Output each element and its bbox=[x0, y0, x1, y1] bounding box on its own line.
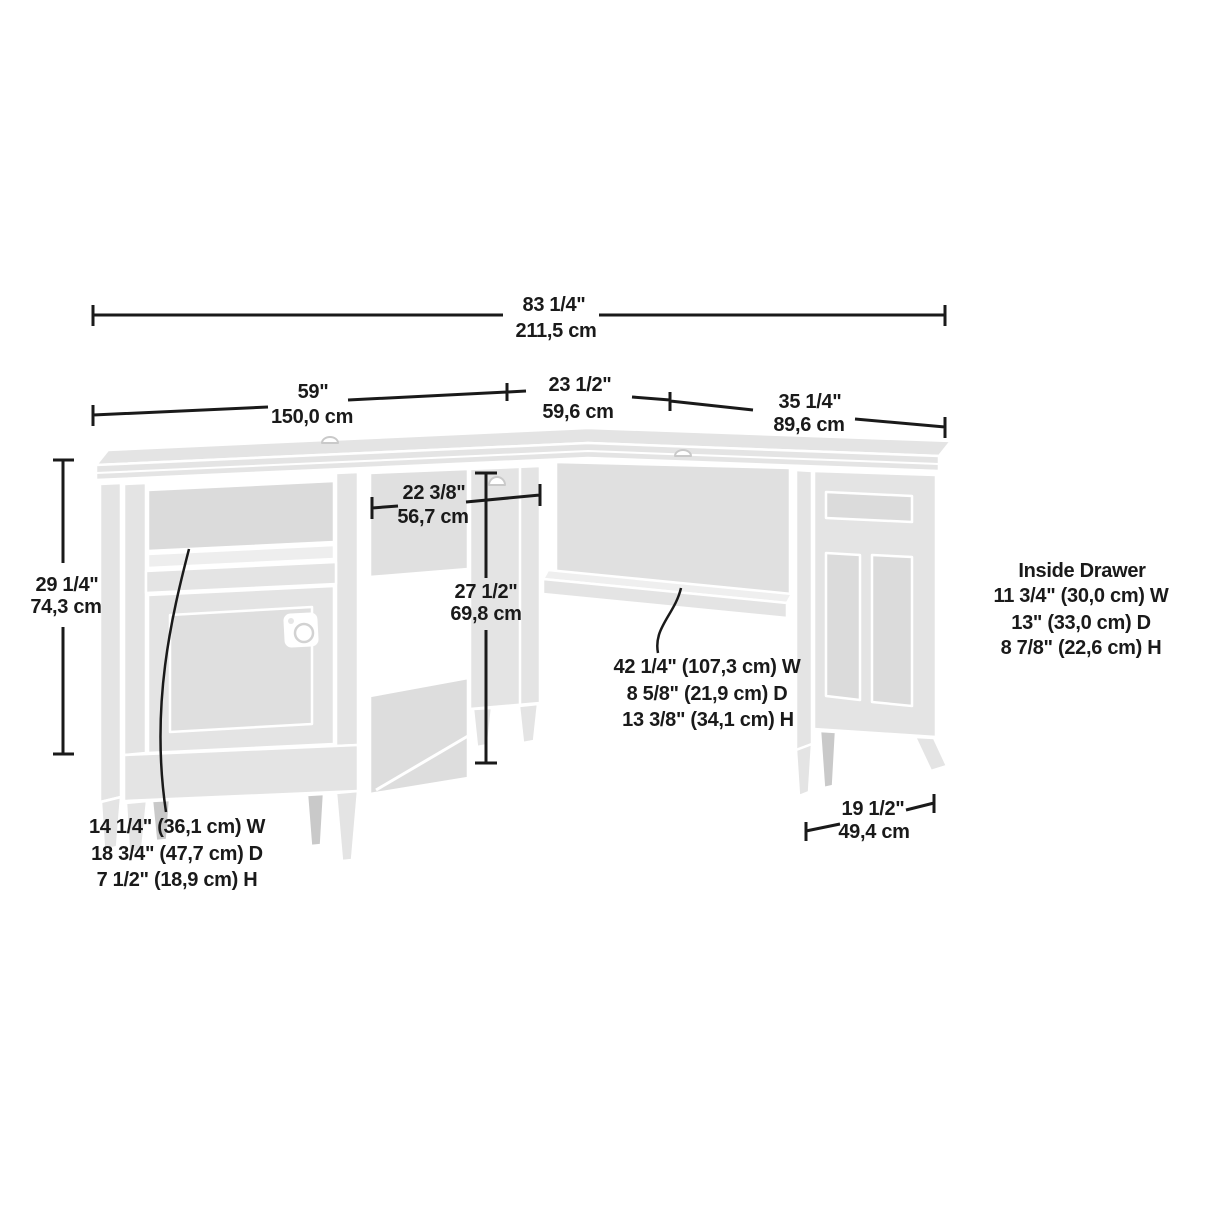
corner-column-foot-right bbox=[519, 704, 538, 743]
dim-return-depth-cm-label: 49,4 cm bbox=[838, 822, 909, 842]
dim-height-cm-label: 74,3 cm bbox=[30, 597, 101, 617]
knee-lower-rail bbox=[370, 678, 468, 794]
right-pedestal-front-leg bbox=[796, 744, 812, 796]
left-pedestal-left-stile bbox=[124, 483, 146, 755]
note-cubby-line-1: 14 1/4" (36,1 cm) W bbox=[89, 817, 265, 837]
note-shelf-line-3: 13 3/8" (34,1 cm) H bbox=[622, 710, 794, 730]
grommet-icon-4 bbox=[675, 450, 691, 456]
right-pedestal-panel-left bbox=[826, 553, 860, 700]
dim-height-in-label: 29 1/4" bbox=[36, 575, 99, 595]
dim-main-cm-label: 150,0 cm bbox=[271, 407, 353, 427]
dim-main-in-label: 59" bbox=[298, 382, 329, 402]
desk bbox=[96, 428, 951, 861]
dimension-diagram: 83 1/4" 211,5 cm 59" 150,0 cm 23 1/2" 59… bbox=[0, 0, 1214, 1214]
right-pedestal-front-stile bbox=[796, 470, 812, 750]
dim-return-width-in-label: 35 1/4" bbox=[779, 392, 842, 412]
dim-knee-in-label: 22 3/8" bbox=[403, 483, 466, 503]
grommet-icon-1 bbox=[322, 437, 338, 443]
door-knob bbox=[283, 612, 319, 648]
note-shelf-line-1: 42 1/4" (107,3 cm) W bbox=[614, 657, 801, 677]
dim-return-depth-in-label: 19 1/2" bbox=[842, 799, 905, 819]
inside-drawer-line-3: 8 7/8" (22,6 cm) H bbox=[1001, 638, 1162, 658]
dim-corner-cm-label: 59,6 cm bbox=[542, 402, 613, 422]
inside-drawer-line-1: 11 3/4" (30,0 cm) W bbox=[994, 586, 1169, 606]
dim-clearance-in-label: 27 1/2" bbox=[455, 582, 518, 602]
corner-column-foot-left bbox=[473, 708, 492, 747]
left-pedestal-front-right-leg bbox=[336, 791, 358, 861]
dim-corner-in-label: 23 1/2" bbox=[549, 375, 612, 395]
note-cubby-line-2: 18 3/4" (47,7 cm) D bbox=[91, 844, 263, 864]
right-pedestal-panel-right bbox=[872, 555, 912, 706]
note-shelf-line-2: 8 5/8" (21,9 cm) D bbox=[627, 684, 788, 704]
dim-clearance-cm-label: 69,8 cm bbox=[450, 604, 521, 624]
left-pedestal-right-stile bbox=[336, 472, 358, 746]
left-pedestal-bottom-rail bbox=[124, 745, 358, 801]
right-pedestal-upper-panel bbox=[826, 492, 912, 522]
desk-line-art bbox=[0, 0, 1214, 1214]
grommet-icon-2 bbox=[489, 477, 505, 485]
left-pedestal-side bbox=[100, 483, 121, 802]
inside-drawer-title: Inside Drawer bbox=[1018, 561, 1145, 581]
right-pedestal-right-leg bbox=[915, 737, 947, 771]
right-pedestal-inner-leg bbox=[820, 731, 836, 788]
note-cubby-line-3: 7 1/2" (18,9 cm) H bbox=[97, 870, 258, 890]
dim-knee-cm-label: 56,7 cm bbox=[397, 507, 468, 527]
dim-return-width-cm-label: 89,6 cm bbox=[773, 415, 844, 435]
dim-overall-in-label: 83 1/4" bbox=[523, 295, 586, 315]
cubby-back-panel bbox=[148, 481, 334, 551]
dim-overall-cm-label: 211,5 cm bbox=[515, 321, 596, 341]
inside-drawer-line-2: 13" (33,0 cm) D bbox=[1011, 613, 1151, 633]
left-pedestal-back-leg-right bbox=[307, 794, 324, 846]
